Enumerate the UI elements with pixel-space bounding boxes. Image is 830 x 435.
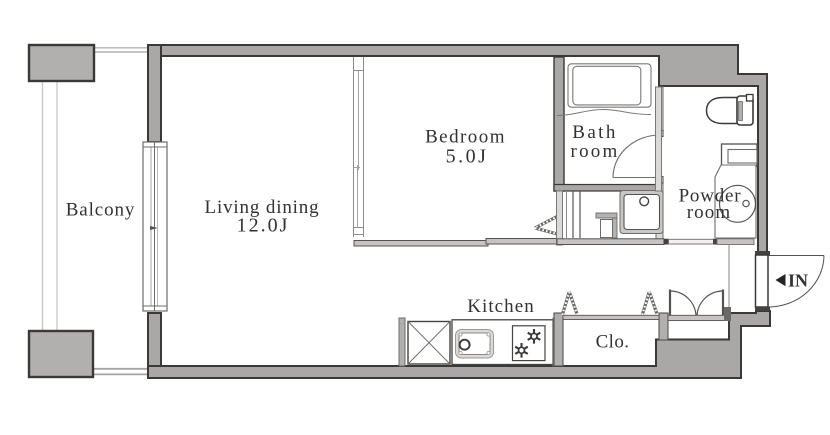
svg-text:Kitchen: Kitchen — [467, 296, 535, 317]
svg-text:12.0J: 12.0J — [237, 215, 290, 237]
svg-text:Balcony: Balcony — [66, 200, 136, 221]
svg-text:room: room — [687, 202, 732, 223]
svg-text:Clo.: Clo. — [596, 332, 630, 353]
svg-text:Bedroom: Bedroom — [425, 126, 506, 147]
svg-text:Bath: Bath — [572, 122, 618, 143]
svg-text:IN: IN — [788, 271, 808, 291]
svg-text:room: room — [571, 141, 620, 162]
svg-text:5.0J: 5.0J — [446, 146, 489, 168]
